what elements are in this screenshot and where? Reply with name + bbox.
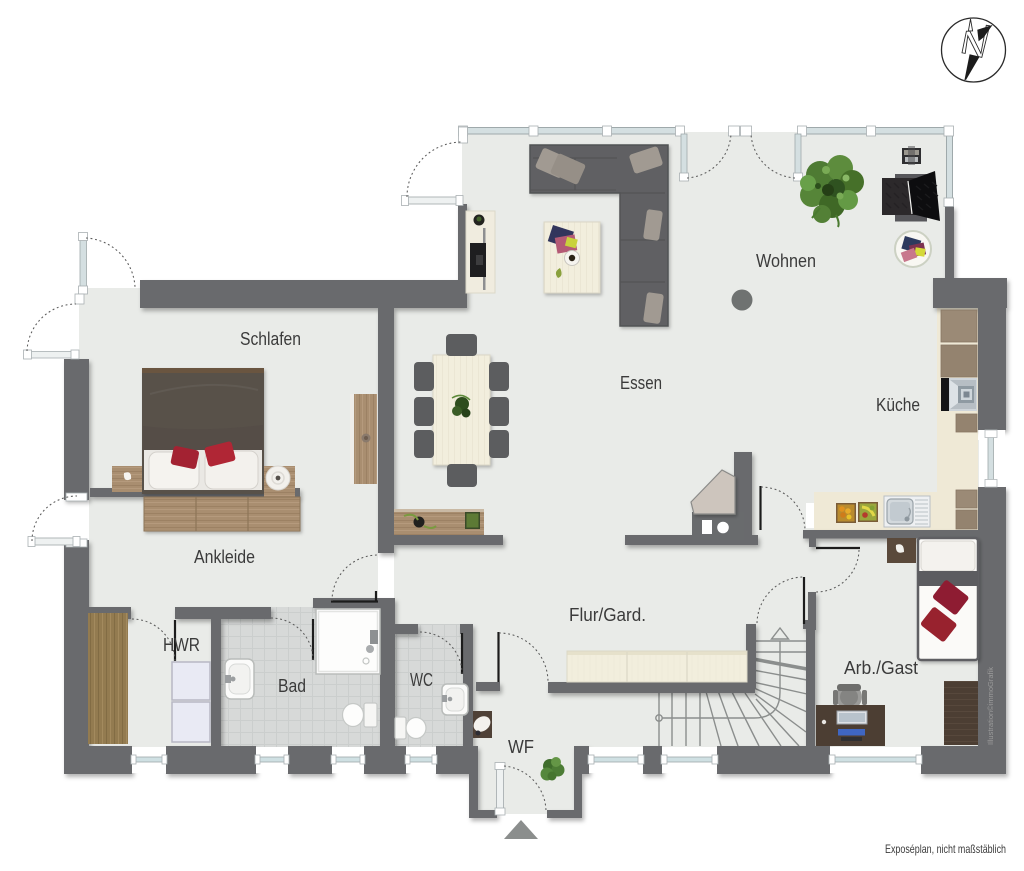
svg-text:Exposéplan, nicht maßstäblich: Exposéplan, nicht maßstäblich xyxy=(885,842,1006,856)
svg-text:Illustration©immoGrafik: Illustration©immoGrafik xyxy=(986,667,995,745)
svg-text:Ankleide: Ankleide xyxy=(194,546,255,567)
svg-text:WF: WF xyxy=(508,736,534,757)
svg-text:Bad: Bad xyxy=(278,675,306,696)
svg-text:Schlafen: Schlafen xyxy=(240,328,301,349)
svg-text:Wohnen: Wohnen xyxy=(756,250,816,271)
svg-text:HWR: HWR xyxy=(163,634,200,655)
svg-text:Arb./Gast: Arb./Gast xyxy=(844,657,918,678)
svg-text:Flur/Gard.: Flur/Gard. xyxy=(569,604,646,625)
svg-text:Essen: Essen xyxy=(620,372,662,393)
svg-text:WC: WC xyxy=(410,669,433,690)
svg-text:Küche: Küche xyxy=(876,394,920,415)
